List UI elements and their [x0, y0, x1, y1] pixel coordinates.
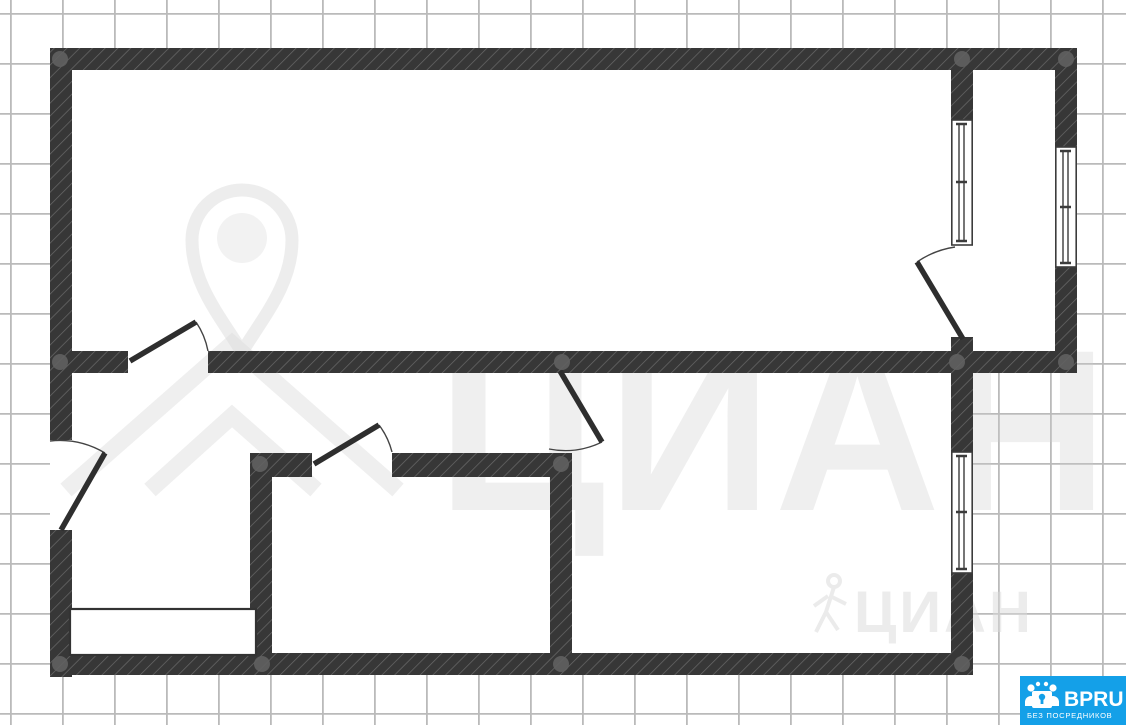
window-balcony-outer — [1056, 147, 1076, 267]
wall-segment-kitchen-top-right — [392, 453, 550, 477]
bpru-logo-badge: BPRU БЕЗ ПОСРЕДНИКОВ — [1020, 676, 1126, 725]
floor-plan-image: ЦИАН ЦИАН — [0, 0, 1126, 725]
wall-segment-top — [50, 48, 1077, 70]
joint-marker — [52, 656, 68, 672]
joint-marker — [254, 656, 270, 672]
wall-segment-middle-main — [208, 351, 1077, 373]
watermark-brand-large: ЦИАН — [437, 302, 1111, 559]
joint-marker — [954, 51, 970, 67]
window-bedroom — [952, 452, 972, 573]
bathtub — [70, 609, 256, 655]
joint-marker — [949, 354, 965, 370]
joint-marker — [52, 51, 68, 67]
badge-subtitle: БЕЗ ПОСРЕДНИКОВ — [1027, 711, 1112, 720]
joint-marker — [252, 456, 268, 472]
wall-segment-bottom — [50, 653, 973, 675]
joint-marker — [553, 456, 569, 472]
wall-segment-balcony-partition-top — [951, 70, 973, 120]
window-balcony-partition — [952, 120, 972, 245]
joint-marker — [1058, 354, 1074, 370]
floor-plan-canvas: ЦИАН ЦИАН — [0, 0, 1126, 725]
wall-segment-left-upper — [50, 48, 72, 440]
joint-marker — [554, 354, 570, 370]
joint-marker — [52, 354, 68, 370]
badge-title: BPRU — [1064, 688, 1124, 711]
joint-marker — [553, 656, 569, 672]
joint-marker — [1058, 51, 1074, 67]
joint-marker — [954, 656, 970, 672]
wall-segment-bedroom-right-lower — [951, 573, 973, 653]
wall-segment-bedroom-right-upper — [951, 373, 973, 452]
wall-segment-bedroom-left — [550, 453, 572, 653]
watermark-brand-small-text: ЦИАН — [854, 580, 1034, 645]
